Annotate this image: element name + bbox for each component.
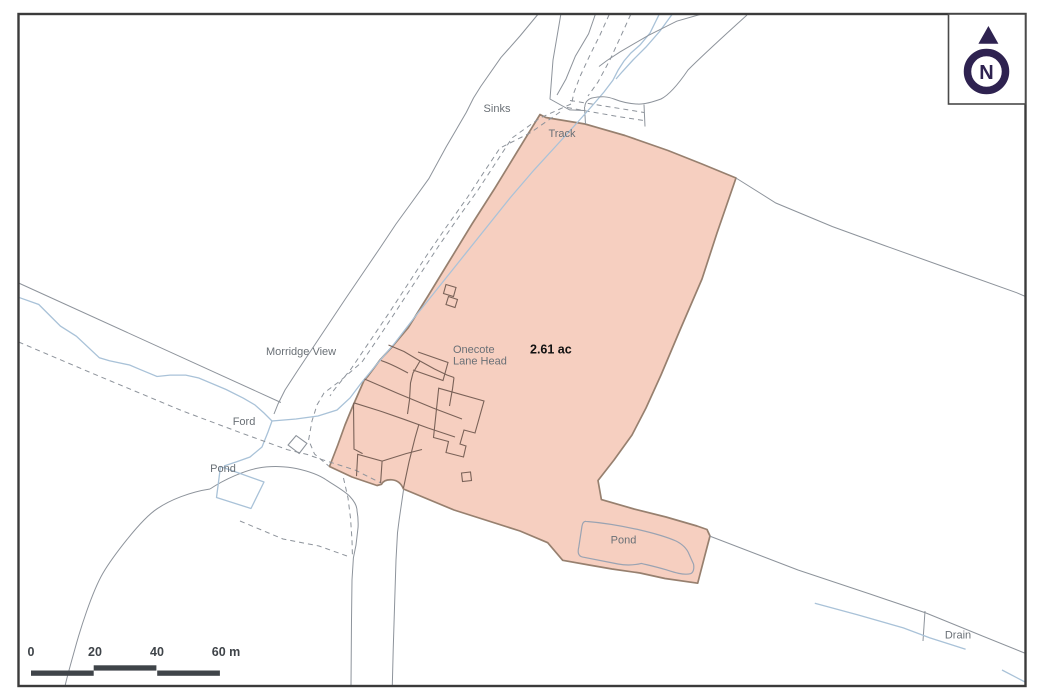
svg-text:Ford: Ford [233, 416, 256, 428]
svg-text:Pond: Pond [210, 463, 236, 475]
svg-text:20: 20 [88, 645, 102, 659]
svg-text:2.61 ac: 2.61 ac [530, 343, 572, 357]
svg-text:Lane Head: Lane Head [453, 356, 507, 368]
svg-text:Track: Track [548, 128, 576, 140]
svg-text:60 m: 60 m [212, 645, 241, 659]
svg-text:Onecote: Onecote [453, 344, 495, 356]
svg-text:Drain: Drain [945, 630, 971, 642]
svg-text:Morridge View: Morridge View [266, 346, 336, 358]
svg-text:40: 40 [150, 645, 164, 659]
svg-text:N: N [979, 62, 993, 84]
svg-text:Sinks: Sinks [484, 103, 511, 115]
svg-text:0: 0 [28, 645, 35, 659]
svg-text:Pond: Pond [611, 535, 637, 547]
